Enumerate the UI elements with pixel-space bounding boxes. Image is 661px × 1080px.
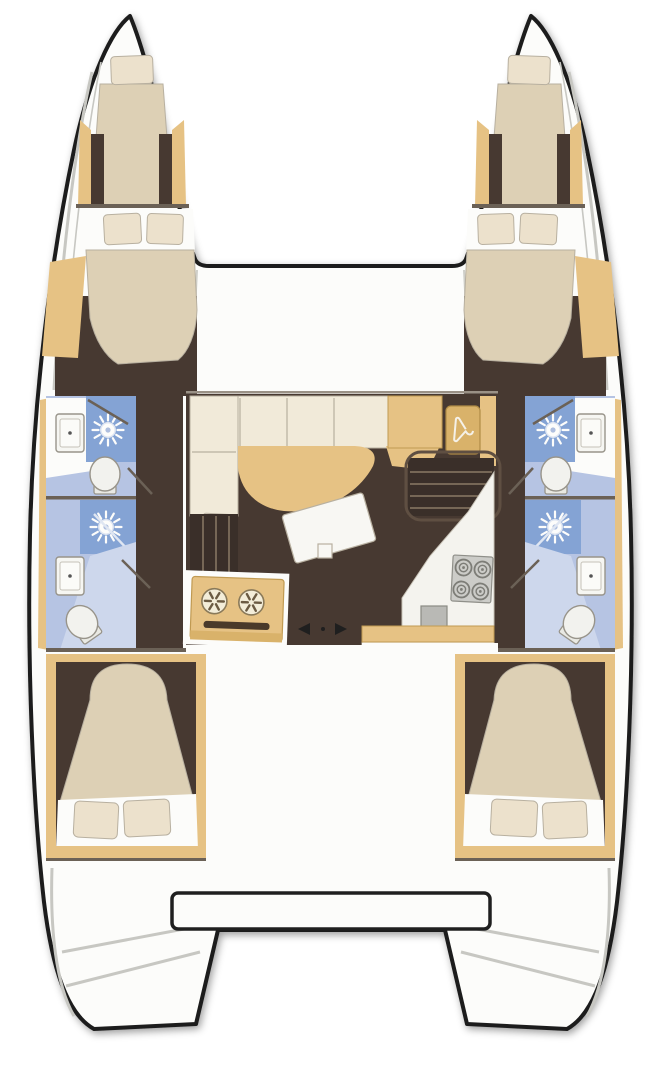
cabinet: [388, 396, 442, 448]
aft-deck-strip: [186, 645, 362, 654]
sofa-side-cushions: [190, 396, 238, 516]
aft-platform-beam: [172, 893, 490, 929]
aft-deck-strip: [362, 643, 498, 654]
floor-plan-canvas: Catamaran yacht interior layout - overhe…: [0, 0, 661, 1080]
stairs: [190, 514, 238, 576]
galley-sill: [362, 626, 494, 642]
wardrobe: [446, 406, 480, 454]
saloon: [183, 391, 500, 654]
galley-sink: [421, 606, 447, 628]
catamaran-floor-plan: [0, 0, 661, 1080]
four-burner-hob: [451, 555, 493, 603]
port-companionway-stairs: [190, 514, 238, 576]
table-leg-hatch: [318, 544, 332, 558]
stove-oven-unit: [183, 570, 290, 648]
saloon-front-wall: [186, 391, 498, 394]
